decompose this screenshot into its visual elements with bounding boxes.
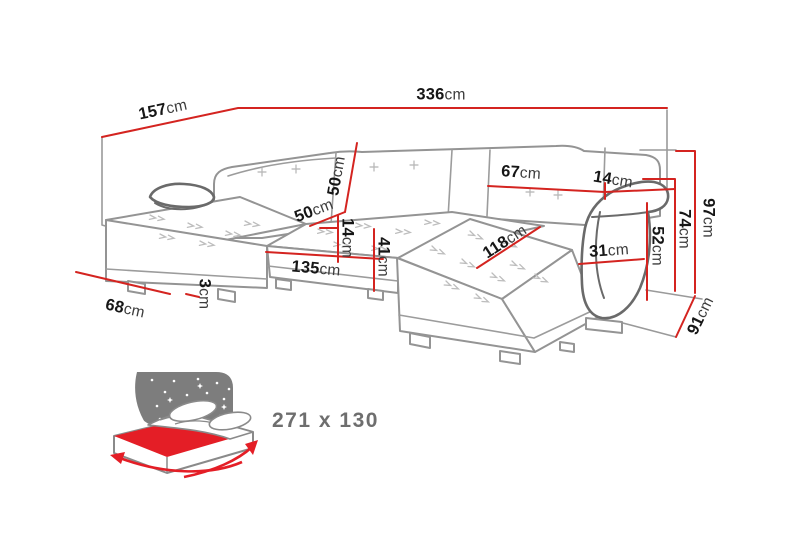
dim-label-armrest-height-52: 52cm bbox=[649, 226, 666, 266]
dim-value: 336 bbox=[416, 86, 444, 104]
dim-unit: cm bbox=[519, 164, 541, 182]
diagram-canvas bbox=[0, 0, 800, 533]
dim-label-height-97: 97cm bbox=[700, 198, 717, 238]
dim-value: 74 bbox=[676, 209, 694, 228]
dim-unit: cm bbox=[319, 261, 341, 280]
dim-value: 97 bbox=[700, 198, 718, 217]
dim-value: 3 bbox=[196, 279, 214, 288]
dim-unit: cm bbox=[196, 288, 213, 309]
dim-value: 14 bbox=[339, 218, 357, 237]
dim-value: 31 bbox=[588, 242, 608, 261]
dim-unit: cm bbox=[649, 245, 666, 266]
sofa-dimension-diagram: 336cm 157cm 97cm 74cm 52cm 91cm 67cm 14c… bbox=[0, 0, 800, 533]
dim-value: 41 bbox=[375, 237, 393, 256]
dim-unit: cm bbox=[328, 155, 348, 179]
dim-value: 50 bbox=[324, 175, 345, 197]
dim-label-total-width-336: 336cm bbox=[416, 87, 465, 104]
dim-label-height-74: 74cm bbox=[676, 209, 693, 249]
dim-value: 67 bbox=[501, 162, 521, 181]
dim-unit: cm bbox=[611, 171, 634, 191]
width-arrowhead bbox=[110, 452, 125, 464]
sleeping-function-icon bbox=[110, 372, 258, 477]
dim-unit: cm bbox=[339, 237, 356, 258]
dim-value: 52 bbox=[649, 226, 667, 245]
dim-unit: cm bbox=[375, 256, 392, 277]
dim-unit: cm bbox=[700, 217, 717, 238]
dim-label-cushion-67: 67cm bbox=[501, 163, 542, 183]
dim-label-clearance-3: 3cm bbox=[196, 279, 213, 309]
dim-label-thickness-14: 14cm bbox=[339, 218, 356, 258]
dim-unit: cm bbox=[607, 241, 629, 259]
sleeping-size-label: 271 x 130 bbox=[272, 410, 379, 431]
dim-unit: cm bbox=[676, 228, 693, 249]
dim-label-seat-height-41: 41cm bbox=[375, 237, 392, 277]
dim-value: 135 bbox=[291, 257, 321, 277]
dim-unit: cm bbox=[445, 87, 466, 104]
dim-label-armrest-31: 31cm bbox=[589, 241, 630, 261]
left-armrest bbox=[150, 184, 214, 209]
